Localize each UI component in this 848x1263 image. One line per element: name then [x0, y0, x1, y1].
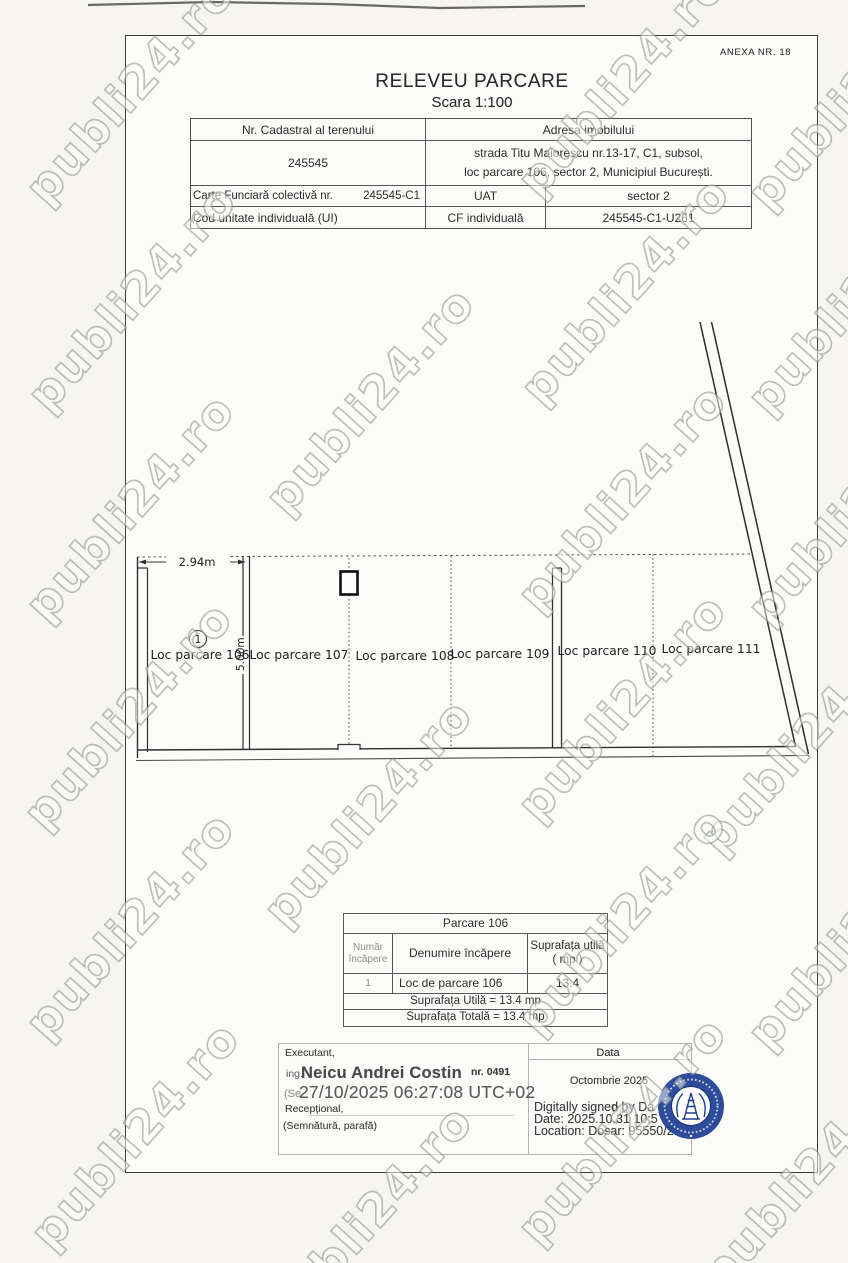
scale-label: Scara 1:100: [272, 94, 672, 111]
uat-label-cell: UAT: [426, 186, 546, 207]
header-number-line1: Număr: [353, 942, 383, 954]
cf-collective-value: 245545-C1: [363, 190, 420, 202]
spot-label-107: Loc parcare 107: [250, 648, 349, 662]
header-number-line2: încăpere: [349, 954, 388, 966]
bottom-wall-bump: [338, 745, 360, 751]
row-number-cell: 1: [344, 974, 393, 994]
form-faint-line: [309, 1115, 514, 1116]
cf-individual-label-cell: CF individuală: [426, 207, 546, 228]
area-table-title: Parcare 106: [344, 914, 607, 934]
header-room-name: Denumire încăpere: [393, 934, 528, 974]
cadastral-number-cell: 245545: [191, 141, 426, 186]
digital-timestamp: 27/10/2025 06:27:08 UTC+02: [299, 1082, 535, 1103]
data-header: Data: [527, 1047, 689, 1059]
cadastral-header-cell: Nr. Cadastral al terenului: [191, 119, 426, 141]
row-area-cell: 13.4: [528, 974, 607, 994]
address-header-cell: Adresa imobilului: [426, 119, 751, 141]
diagonal-wall-inner: [700, 322, 796, 747]
official-round-stamp: [655, 1070, 727, 1142]
stamp-bottom-dot: [690, 1135, 692, 1137]
uat-value-cell: sector 2: [546, 186, 751, 207]
unit-code-cell: Cod unitate individuală (UI): [191, 207, 426, 228]
diagonal-wall-outer: [712, 322, 809, 754]
spot-label-109: Loc parcare 109: [451, 647, 550, 661]
header-area-line2: ( mp ): [552, 954, 582, 967]
semnatura-label: (Semnătură, parafă): [283, 1120, 377, 1132]
spot-index-number: 1: [195, 634, 202, 646]
executant-label: Executant,: [285, 1047, 335, 1059]
spot-label-110: Loc parcare 110: [558, 644, 657, 658]
header-room-number: Număr încăpere: [344, 934, 393, 974]
header-area-line1: Suprafața utilă: [530, 940, 604, 953]
data-header-underline: [528, 1059, 690, 1060]
address-line1: strada Titu Maiorescu nr.13-17, C1, subs…: [474, 144, 703, 163]
certificate-number: nr. 0491: [471, 1066, 510, 1078]
cf-individual-value-cell: 245545-C1-U261: [546, 207, 751, 228]
scan-artifact-line: [88, 2, 585, 8]
scanned-parking-plan-document: { "document": { "annex": "ANEXA NR. 18",…: [0, 0, 848, 1263]
cf-collective-cell: Carte Funciară colectivă nr. 245545-C1: [191, 186, 426, 207]
digital-location-line: Location: Dosar: 95550/2: [534, 1124, 674, 1138]
row-name-cell: Loc de parcare 106: [393, 974, 528, 994]
bottom-wall-bottom: [136, 756, 809, 761]
annex-label: ANEXA NR. 18: [720, 47, 791, 58]
receptionat-label: Recepțional,: [285, 1103, 343, 1115]
page-title: RELEVEU PARCARE: [272, 71, 672, 93]
total-usable-row: Suprafața Utilă = 13.4 mp: [344, 994, 607, 1010]
address-line2: loc parcare 106, sector 2, Municipiul Bu…: [464, 163, 713, 182]
cf-collective-label: Carte Funciară colectivă nr.: [193, 190, 333, 202]
spot-label-111: Loc parcare 111: [662, 642, 761, 656]
total-total-row: Suprafața Totală = 13.4 mp: [344, 1010, 607, 1026]
dim-arrow-right: [238, 560, 245, 565]
spot-label-108: Loc parcare 108: [356, 649, 455, 663]
dim-arrow-left: [139, 560, 146, 565]
property-info-table: Nr. Cadastral al terenului Adresa imobil…: [190, 118, 752, 229]
column-pillar: [341, 572, 358, 595]
address-cell: strada Titu Maiorescu nr.13-17, C1, subs…: [426, 141, 751, 186]
area-summary-table: Parcare 106 Număr încăpere Denumire încă…: [343, 913, 608, 1027]
bottom-wall-top: [137, 747, 796, 751]
header-usable-area: Suprafața utilă ( mp ): [528, 934, 607, 974]
spot-label-106: Loc parcare 106: [151, 648, 250, 662]
executant-name: Neicu Andrei Costin: [301, 1064, 462, 1083]
dim-width-label: 2.94m: [179, 555, 216, 569]
